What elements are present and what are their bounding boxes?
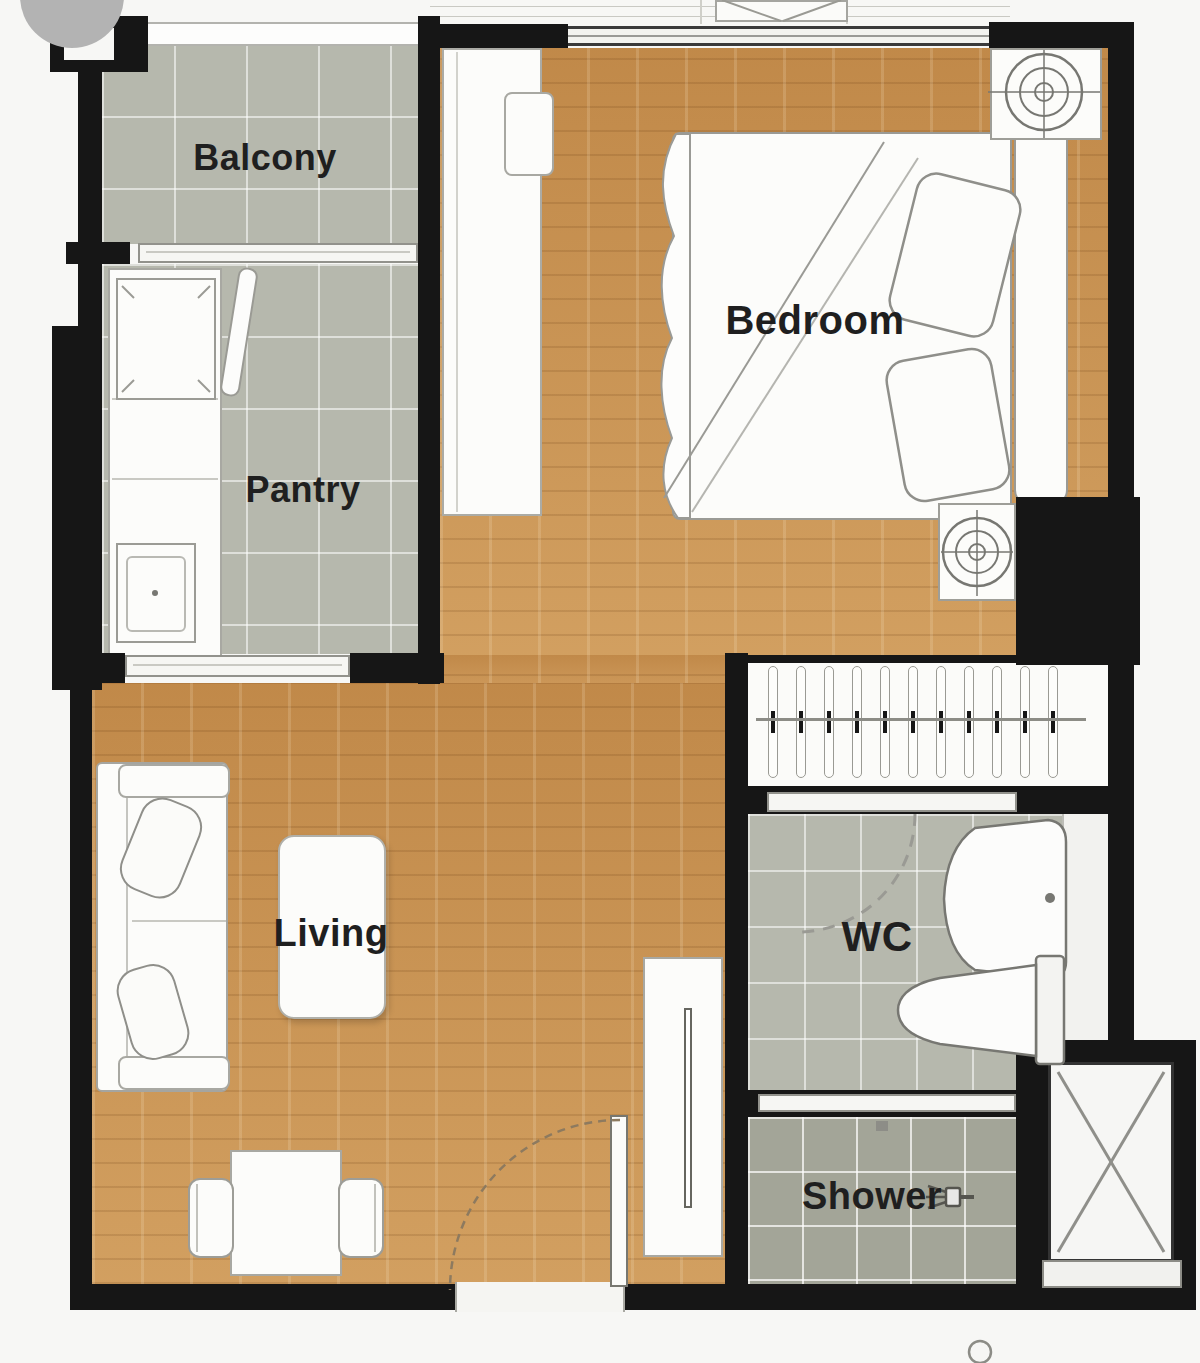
- counter-divider: [112, 478, 218, 480]
- wall-left-lower: [70, 690, 92, 1310]
- hanger-icon: [880, 666, 890, 778]
- sofa: [96, 762, 228, 1092]
- pantry-label: Pantry: [245, 469, 360, 511]
- floor-plan: Balcony Pantry Bedroom Living WC Shower: [0, 0, 1200, 1363]
- bedroom-label: Bedroom: [725, 298, 904, 343]
- bed-headboard: [1014, 100, 1068, 506]
- stool: [504, 92, 554, 176]
- cabinet-inner-line: [456, 52, 458, 512]
- wall-balcony-bedroom: [418, 16, 440, 684]
- ac-unit-support: [700, 0, 702, 24]
- living-label: Living: [274, 912, 389, 955]
- pantry-sliding-door: [125, 655, 350, 677]
- wall-left-thick: [52, 326, 102, 690]
- hanger-icon: [1020, 666, 1030, 778]
- fridge: [116, 278, 216, 400]
- sofa-armrest: [118, 1056, 230, 1090]
- sink-drain-dot: [152, 590, 158, 596]
- shower-label: Shower: [802, 1175, 942, 1218]
- wall-left-upper: [78, 60, 102, 326]
- door-track-line: [133, 664, 342, 666]
- bedside-table: [938, 503, 1016, 601]
- tv-cabinet: [643, 957, 723, 1257]
- shower-drain: [876, 1121, 888, 1131]
- tv: [684, 1008, 692, 1208]
- hanger-icon: [852, 666, 862, 778]
- wardrobe-rail: [756, 718, 1086, 721]
- window-mid-line: [568, 35, 989, 37]
- wc-sliding-door: [767, 792, 1017, 812]
- shower-partition: [758, 1094, 1016, 1112]
- hanger-icon: [768, 666, 778, 778]
- service-shaft: [1048, 1062, 1174, 1262]
- ac-condenser-unit: [715, 0, 848, 22]
- hanger-icon: [1048, 666, 1058, 778]
- shaft-sill: [1042, 1260, 1182, 1288]
- entrance-door-leaf: [610, 1115, 628, 1287]
- dining-chair: [338, 1178, 384, 1258]
- wall-balcony-stub: [66, 242, 130, 264]
- hanger-icon: [796, 666, 806, 778]
- wall-pier: [1016, 497, 1140, 665]
- hanger-icon: [936, 666, 946, 778]
- chair-back-line: [374, 1184, 376, 1252]
- wall-pantry-south-right: [350, 653, 444, 683]
- door-track-line: [146, 251, 410, 253]
- wall-top-left-seg: [418, 24, 568, 48]
- wall-bottom: [70, 1284, 1196, 1310]
- wall-pantry-south-left: [92, 653, 125, 683]
- balcony-label: Balcony: [193, 137, 337, 179]
- hanger-icon: [964, 666, 974, 778]
- dining-table: [230, 1150, 342, 1276]
- bedside-table: [990, 48, 1102, 140]
- hanger-icon: [908, 666, 918, 778]
- sofa-armrest: [118, 764, 230, 798]
- sofa-seat-line: [132, 920, 226, 922]
- hanger-icon: [824, 666, 834, 778]
- entrance-threshold: [455, 1282, 625, 1312]
- wc-label: WC: [842, 913, 913, 961]
- dining-chair: [188, 1178, 234, 1258]
- balcony-sliding-door: [138, 243, 418, 263]
- watermark-dot: [969, 1341, 991, 1363]
- hanger-icon: [992, 666, 1002, 778]
- wall-wc-left: [725, 653, 748, 1310]
- sofa-backrest-line: [126, 768, 128, 1086]
- chair-back-line: [196, 1184, 198, 1252]
